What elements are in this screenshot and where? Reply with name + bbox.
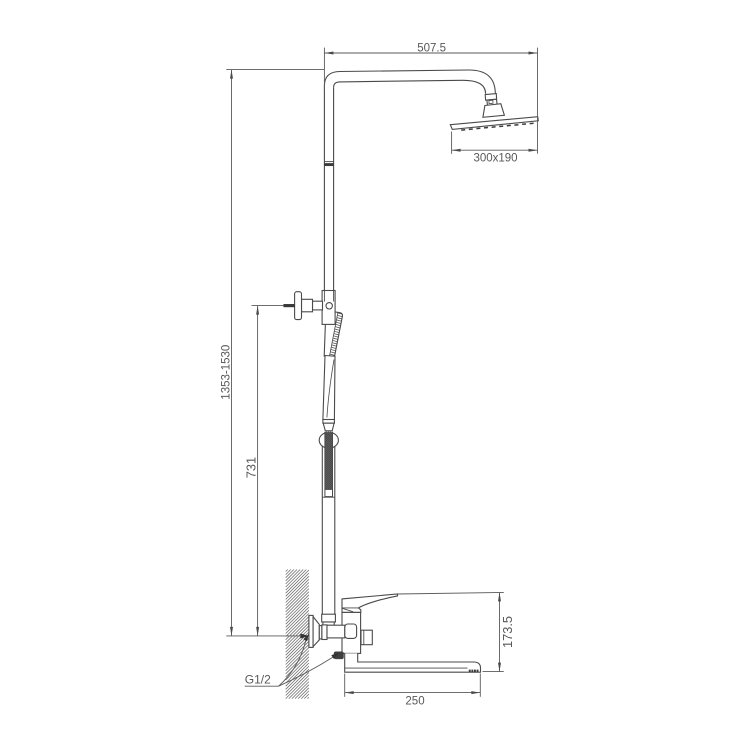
svg-text:1353-1530: 1353-1530 bbox=[221, 345, 233, 400]
svg-text:G1/2: G1/2 bbox=[245, 672, 271, 686]
svg-text:300x190: 300x190 bbox=[473, 153, 517, 165]
svg-text:250: 250 bbox=[405, 696, 424, 708]
svg-text:173.5: 173.5 bbox=[500, 616, 515, 648]
svg-text:731: 731 bbox=[244, 457, 259, 478]
svg-text:507.5: 507.5 bbox=[417, 43, 446, 55]
